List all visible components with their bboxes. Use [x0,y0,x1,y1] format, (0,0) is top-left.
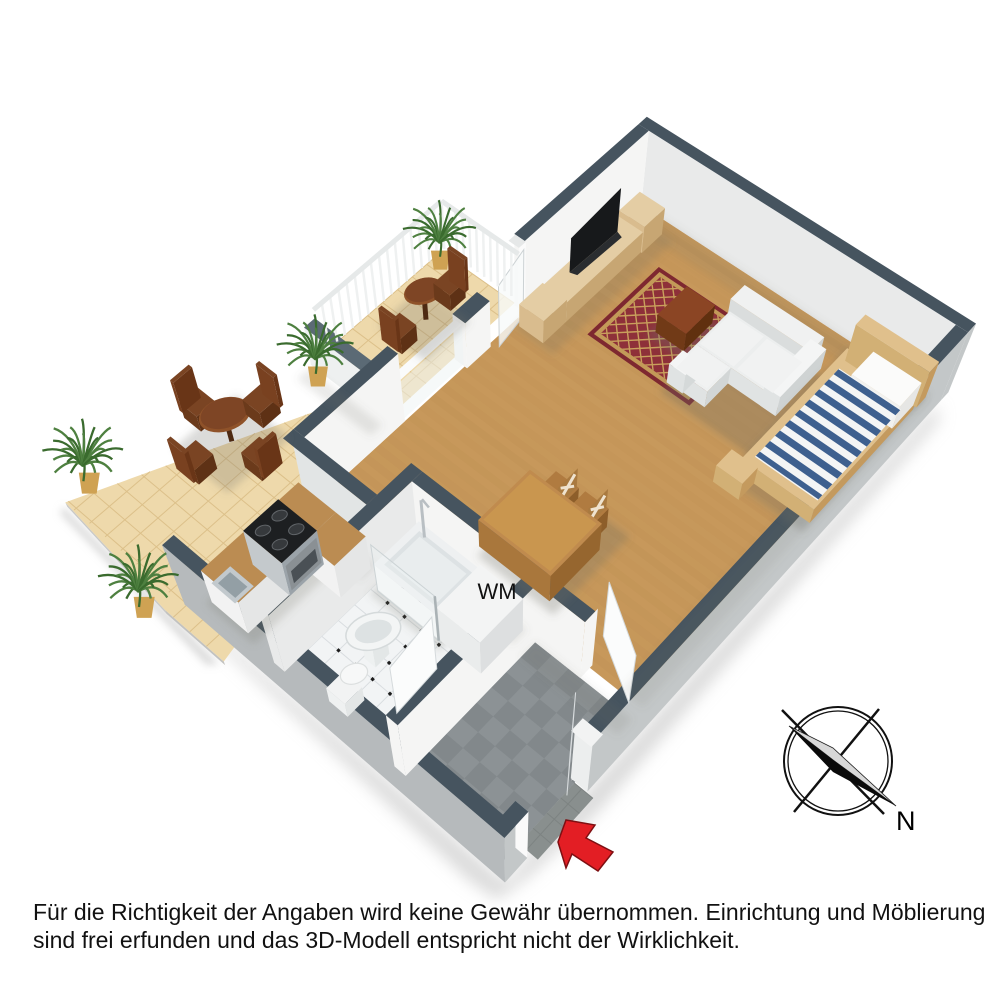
svg-text:sind frei erfunden und das 3D-: sind frei erfunden und das 3D-Modell ent… [33,927,740,953]
svg-text:WM: WM [477,579,516,604]
svg-text:N: N [896,806,916,836]
svg-text:Für die Richtigkeit der Angabe: Für die Richtigkeit der Angaben wird kei… [33,899,985,925]
